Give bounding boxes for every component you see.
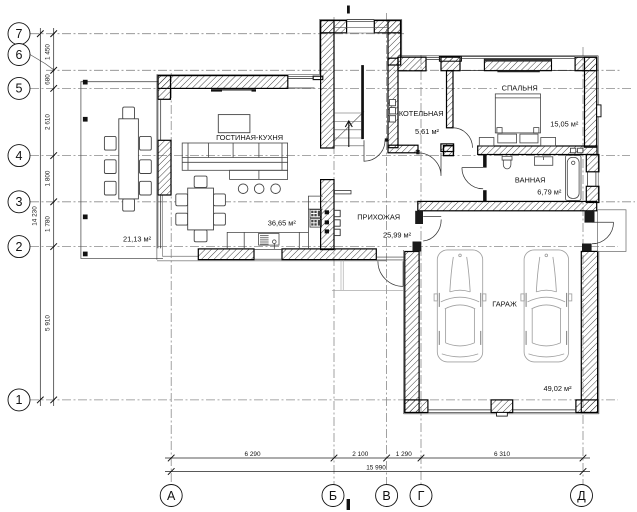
- svg-text:ГАРАЖ: ГАРАЖ: [492, 299, 517, 308]
- svg-text:ВАННАЯ: ВАННАЯ: [515, 175, 546, 184]
- svg-text:36,65 м²: 36,65 м²: [268, 218, 297, 227]
- svg-text:ГОСТИНАЯ-КУХНЯ: ГОСТИНАЯ-КУХНЯ: [216, 133, 283, 142]
- svg-text:7: 7: [16, 27, 23, 41]
- svg-text:1 800: 1 800: [45, 170, 52, 186]
- svg-text:5 910: 5 910: [45, 315, 52, 331]
- svg-text:6 290: 6 290: [245, 451, 261, 458]
- svg-text:Г: Г: [418, 489, 425, 503]
- svg-text:14 230: 14 230: [31, 206, 38, 226]
- svg-text:А: А: [167, 489, 176, 503]
- svg-text:2: 2: [16, 240, 23, 254]
- svg-text:КОТЕЛЬНАЯ: КОТЕЛЬНАЯ: [399, 109, 444, 118]
- svg-text:6 310: 6 310: [494, 451, 510, 458]
- svg-text:2 100: 2 100: [352, 451, 368, 458]
- svg-text:15 990: 15 990: [366, 465, 386, 472]
- svg-text:Б: Б: [329, 489, 337, 503]
- svg-text:В: В: [382, 489, 390, 503]
- svg-text:1 290: 1 290: [396, 451, 412, 458]
- svg-text:49,02 м²: 49,02 м²: [543, 384, 572, 393]
- svg-text:2 610: 2 610: [45, 114, 52, 130]
- svg-text:680: 680: [45, 74, 52, 85]
- svg-text:25,99 м²: 25,99 м²: [383, 231, 412, 240]
- svg-text:3: 3: [16, 195, 23, 209]
- svg-text:1 450: 1 450: [45, 44, 52, 60]
- svg-text:5: 5: [16, 82, 23, 96]
- svg-text:5,61 м²: 5,61 м²: [415, 127, 440, 136]
- svg-text:1: 1: [16, 393, 23, 407]
- svg-text:ПРИХОЖАЯ: ПРИХОЖАЯ: [357, 213, 400, 222]
- svg-text:Д: Д: [577, 489, 586, 503]
- svg-text:6: 6: [16, 48, 23, 62]
- svg-text:6,79 м²: 6,79 м²: [537, 188, 562, 197]
- svg-text:СПАЛЬНЯ: СПАЛЬНЯ: [502, 83, 538, 92]
- svg-text:21,13 м²: 21,13 м²: [123, 235, 152, 244]
- svg-text:1 780: 1 780: [45, 216, 52, 232]
- svg-text:15,05 м²: 15,05 м²: [550, 120, 579, 129]
- svg-text:4: 4: [16, 149, 23, 163]
